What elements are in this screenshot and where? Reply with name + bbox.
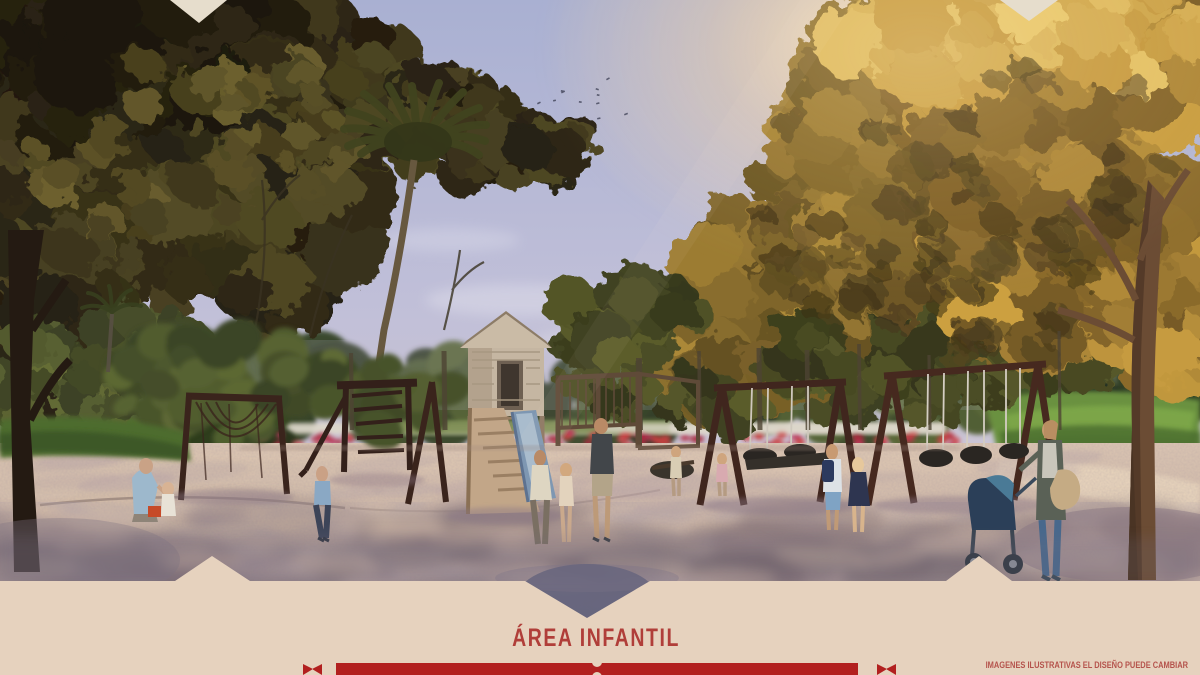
svg-text:ÁREA INFANTIL: ÁREA INFANTIL	[512, 624, 680, 652]
svg-text:IMAGENES ILUSTRATIVAS EL DISEÑ: IMAGENES ILUSTRATIVAS EL DISEÑO PUEDE CA…	[986, 659, 1188, 670]
